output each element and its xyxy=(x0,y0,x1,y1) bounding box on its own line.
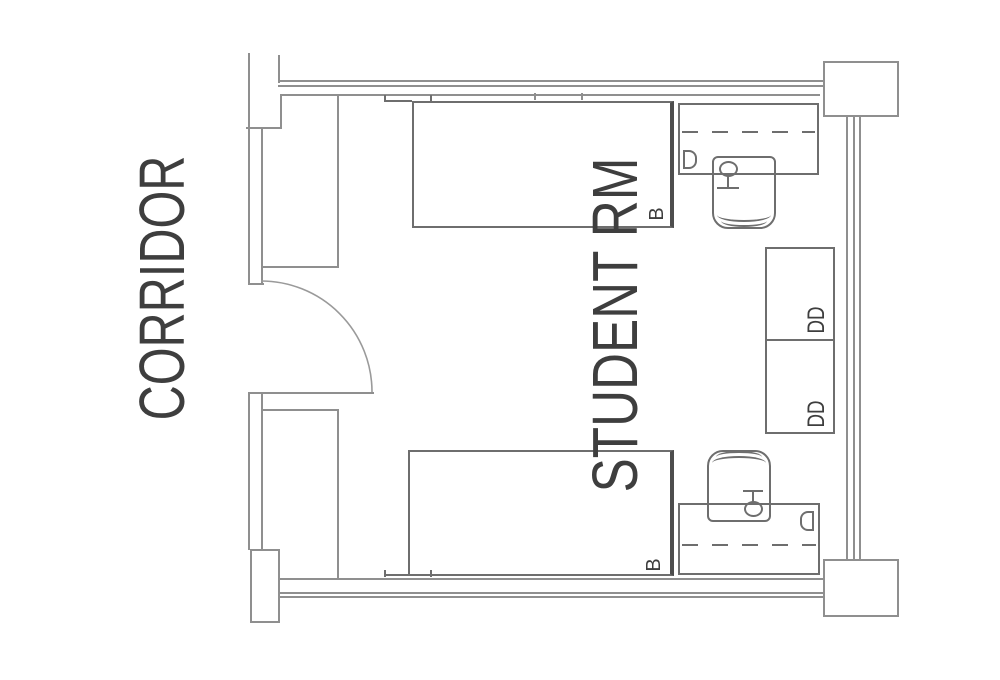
window-mullion-2 xyxy=(853,117,855,559)
bed-2-tick-b xyxy=(430,570,432,577)
desk-2-drawer-line xyxy=(682,544,816,546)
bed-2-tick-a xyxy=(384,570,386,577)
window-mullion-1 xyxy=(846,117,848,559)
wall-left-upper-outer xyxy=(248,53,250,283)
wall-pilaster-top-vert xyxy=(280,94,282,127)
wall-top-outer-2 xyxy=(278,85,823,87)
wall-pier-bottom-left xyxy=(250,549,280,623)
wall-pilaster-top-horiz xyxy=(246,127,282,129)
bed-1-head-tick xyxy=(384,100,412,102)
wall-bottom-inner xyxy=(280,578,823,580)
dresser-1-label: DD xyxy=(805,306,829,333)
wall-top-outer-1 xyxy=(278,80,823,82)
dresser-2-label: DD xyxy=(805,400,829,427)
room-label: STUDENT RM xyxy=(583,158,647,493)
wall-bottom-outer-1 xyxy=(280,592,823,594)
chair-2-back-arc-2 xyxy=(716,451,762,463)
bed-1-tick-b xyxy=(430,95,432,102)
column-top-right xyxy=(823,61,899,117)
corridor-label: CORRIDOR xyxy=(130,156,194,421)
bed-2-head-tick xyxy=(384,574,410,576)
wall-left-lower-outer xyxy=(248,392,250,550)
closet-bottom-top-edge xyxy=(261,409,339,411)
bed-2-label: B xyxy=(644,558,664,571)
closet-top-left-edge xyxy=(261,127,263,285)
chair-1-back-arc-2 xyxy=(721,215,767,227)
column-bottom-right xyxy=(823,559,899,617)
closet-top-bottom-edge xyxy=(261,266,339,268)
wall-top-tick-2 xyxy=(581,93,583,100)
desk-1-drawer-line xyxy=(682,131,815,133)
chair-2-bar xyxy=(743,490,763,492)
door-swing-arc xyxy=(248,270,388,400)
window-mullion-3 xyxy=(859,117,861,559)
chair-1-seat-circle xyxy=(719,161,738,177)
bed-1-label: B xyxy=(647,207,667,220)
wall-top-tick-1 xyxy=(534,93,536,100)
chair-2-seat-circle xyxy=(744,501,763,517)
closet-top-right-edge xyxy=(337,94,339,268)
desk-1-bin xyxy=(683,150,697,169)
wall-left-upper-stub xyxy=(278,55,280,83)
bed-1-tick-a xyxy=(384,95,386,102)
floor-plan: CORRIDOR STUDENT RM B B DD DD xyxy=(0,0,1000,680)
wall-left-lower-inner xyxy=(261,392,263,550)
closet-bottom-right-edge xyxy=(337,409,339,578)
desk-2-bin xyxy=(800,511,814,531)
wall-bottom-outer-2 xyxy=(280,596,823,598)
wall-top-inner xyxy=(280,94,820,96)
chair-2-stem xyxy=(752,491,754,503)
chair-1-bar xyxy=(717,187,739,189)
